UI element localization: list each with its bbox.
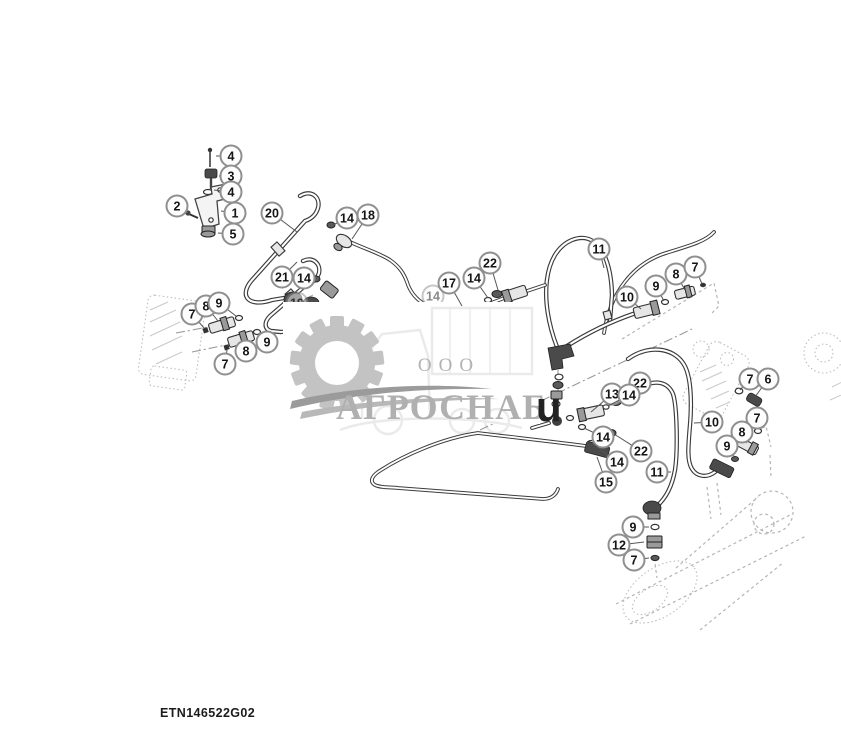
svg-text:5: 5	[230, 228, 237, 242]
callout-1: 1	[221, 203, 246, 224]
callout-5: 5	[218, 224, 244, 245]
callout-8: 8	[666, 264, 687, 291]
svg-text:7: 7	[754, 412, 761, 426]
svg-text:8: 8	[673, 268, 680, 282]
svg-text:7: 7	[222, 358, 229, 372]
fitting-8c	[674, 284, 696, 300]
svg-text:14: 14	[467, 272, 481, 286]
svg-text:4: 4	[228, 150, 235, 164]
callout-6: 6	[755, 369, 779, 398]
callout-20: 20	[262, 203, 298, 233]
svg-text:22: 22	[634, 445, 648, 459]
svg-text:9: 9	[216, 297, 223, 311]
svg-text:13: 13	[605, 388, 619, 402]
hose-10-top-stub	[567, 314, 633, 346]
connector-13	[577, 404, 605, 422]
ring-9a	[236, 316, 243, 321]
tube-18-left	[350, 242, 433, 309]
svg-text:9: 9	[724, 440, 731, 454]
callout-14: 14	[294, 268, 317, 289]
svg-text:14: 14	[596, 431, 610, 445]
callout-2: 2	[167, 196, 189, 217]
svg-text:8: 8	[739, 426, 746, 440]
svg-text:10: 10	[705, 416, 719, 430]
callout-4: 4	[216, 146, 242, 167]
ring-14d	[485, 298, 492, 303]
svg-text:10: 10	[620, 291, 634, 305]
svg-text:9: 9	[653, 280, 660, 294]
ring-14e	[567, 416, 574, 421]
ghost-fitting-right-edge	[804, 333, 841, 400]
svg-text:14: 14	[340, 212, 354, 226]
svg-text:12: 12	[612, 539, 626, 553]
svg-text:7: 7	[631, 554, 638, 568]
svg-text:11: 11	[592, 243, 605, 257]
callout-11: 11	[647, 462, 672, 483]
svg-text:6: 6	[765, 373, 772, 387]
drawing-number: ETN146522G02	[160, 706, 255, 720]
svg-text:2: 2	[174, 200, 181, 214]
tick-7a	[203, 327, 209, 333]
svg-text:9: 9	[630, 521, 637, 535]
fitting-8a	[208, 315, 237, 335]
watermark-org-type: ООО	[418, 355, 480, 376]
callout-14: 14	[333, 208, 358, 229]
svg-text:7: 7	[189, 308, 196, 322]
fitting-12	[647, 536, 662, 548]
diagram-page: 1914 ООО АГРОСНАБ u 43421520211418147899…	[0, 0, 841, 731]
svg-text:8: 8	[243, 345, 250, 359]
elbow-port	[648, 513, 660, 519]
callout-9: 9	[257, 332, 278, 353]
watermark-mark: u	[536, 383, 562, 430]
svg-text:1: 1	[232, 207, 239, 221]
callout-9: 9	[646, 276, 667, 302]
watermark-company-name: АГРОСНАБ	[336, 387, 547, 427]
svg-text:22: 22	[483, 257, 497, 271]
plug-6	[745, 392, 762, 407]
svg-text:20: 20	[265, 207, 279, 221]
tick-7c	[700, 283, 706, 287]
ring-9c	[662, 300, 669, 305]
svg-text:9: 9	[264, 336, 271, 350]
fitting-19	[320, 280, 339, 299]
watermark: ООО АГРОСНАБ u	[283, 302, 562, 434]
svg-text:14: 14	[610, 456, 624, 470]
svg-text:21: 21	[275, 271, 289, 285]
bracket-hole	[209, 218, 213, 222]
svg-text:11: 11	[650, 466, 663, 480]
callout-9: 9	[717, 436, 738, 457]
screw-part-4a	[208, 148, 212, 167]
ring-9d	[732, 457, 739, 462]
callout-9: 9	[623, 517, 650, 538]
elbow-hose11-top	[548, 344, 574, 370]
svg-text:17: 17	[442, 277, 456, 291]
svg-text:18: 18	[361, 209, 375, 223]
callout-8: 8	[236, 341, 257, 362]
svg-text:15: 15	[599, 476, 613, 490]
callout-10: 10	[617, 287, 642, 310]
washer-22a	[492, 291, 502, 298]
fitting-17-end	[501, 284, 528, 304]
svg-text:14: 14	[297, 272, 311, 286]
ring-7-upper	[735, 388, 743, 394]
screw-part-2	[185, 210, 198, 218]
svg-text:14: 14	[426, 290, 440, 304]
svg-text:14: 14	[622, 389, 636, 403]
nut-part-5	[201, 226, 215, 237]
callout-10: 10	[694, 412, 723, 433]
ring-7e	[651, 555, 659, 560]
parts-diagram-canvas: 1914 ООО АГРОСНАБ u 43421520211418147899…	[0, 0, 841, 731]
callout-7: 7	[624, 550, 650, 571]
callout-7: 7	[215, 350, 236, 375]
hose-collar	[603, 310, 612, 320]
svg-text:7: 7	[747, 373, 754, 387]
svg-text:7: 7	[692, 261, 699, 275]
callout-9: 9	[209, 293, 237, 317]
ring-9e	[651, 524, 659, 529]
svg-text:4: 4	[228, 186, 235, 200]
ring-14	[555, 374, 563, 380]
callout-7: 7	[685, 257, 706, 285]
